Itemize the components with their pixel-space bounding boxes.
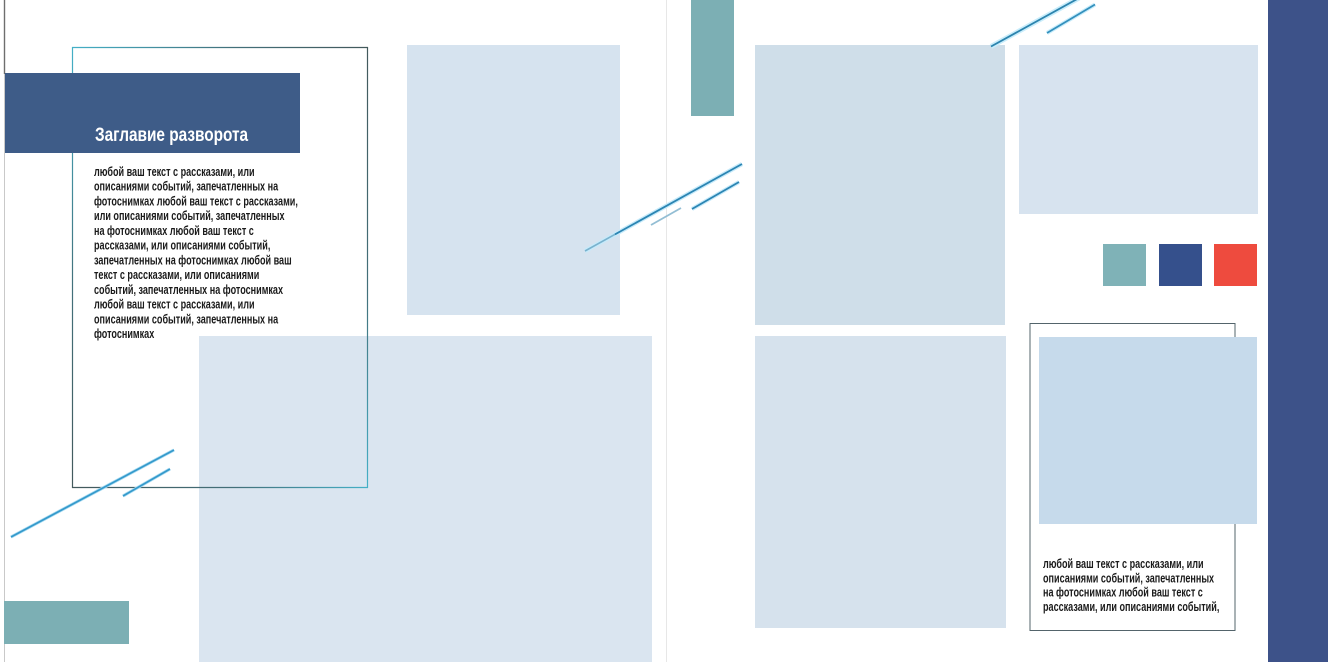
svg-text:Заглавие разворота: Заглавие разворота bbox=[95, 123, 248, 145]
svg-text:любой ваш текст с рассказами,: любой ваш текст с рассказами, или описан… bbox=[1043, 558, 1219, 615]
svg-text:любой ваш текст с рассказами,: любой ваш текст с рассказами, или описан… bbox=[94, 166, 300, 342]
